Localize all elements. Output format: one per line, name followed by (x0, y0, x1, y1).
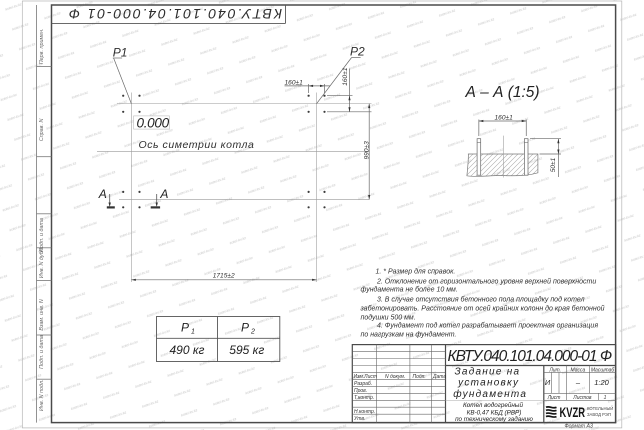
svg-text:Инв. N дубл.: Инв. N дубл. (39, 247, 45, 278)
svg-text:Инв. N подл.: Инв. N подл. (39, 379, 45, 411)
svg-text:Изм.Лист: Изм.Лист (354, 374, 378, 380)
svg-text:160±1: 160±1 (495, 114, 514, 121)
svg-text:по нагрузкам на фундамент.: по нагрузкам на фундамент. (361, 331, 457, 339)
svg-text:160±1: 160±1 (285, 79, 304, 86)
svg-text:подушки 500 мм.: подушки 500 мм. (361, 314, 416, 322)
svg-text:KVZR: KVZR (560, 404, 586, 420)
svg-text:1715±2: 1715±2 (213, 272, 235, 279)
svg-text:И: И (545, 378, 551, 387)
svg-text:Подп. и дата: Подп. и дата (39, 335, 45, 369)
svg-text:Разраб.: Разраб. (354, 381, 372, 387)
svg-text:установку: установку (457, 377, 519, 388)
svg-text:А: А (159, 187, 168, 201)
svg-text:Лист: Лист (547, 395, 561, 401)
svg-text:Листов: Листов (572, 395, 592, 401)
svg-text:Формат А3: Формат А3 (565, 423, 593, 429)
svg-text:Н.контр.: Н.контр. (354, 409, 375, 415)
svg-text:N докум.: N докум. (385, 374, 405, 380)
svg-text:–: – (575, 378, 581, 387)
svg-text:Задание на: Задание на (455, 366, 521, 377)
svg-text:ЗАВОД РЭП: ЗАВОД РЭП (587, 412, 611, 417)
svg-text:А: А (98, 187, 107, 201)
svg-text:по техническому заданию: по техническому заданию (455, 415, 533, 423)
svg-text:А – А (1:5): А – А (1:5) (465, 84, 540, 101)
svg-text:Масштаб: Масштаб (591, 367, 615, 373)
svg-text:Подп.: Подп. (413, 374, 426, 380)
svg-text:Масса: Масса (571, 367, 586, 373)
svg-text:Ось симетрии котла: Ось симетрии котла (139, 139, 255, 151)
svg-text:Перв. примен.: Перв. примен. (39, 28, 45, 64)
svg-text:КВТУ.040.101.04.000-01 Ф: КВТУ.040.101.04.000-01 Ф (67, 6, 282, 22)
svg-text:Пров.: Пров. (354, 388, 367, 394)
svg-text:1:20: 1:20 (594, 378, 609, 387)
svg-text:Т.контр.: Т.контр. (354, 395, 374, 401)
svg-text:595 кг: 595 кг (229, 343, 264, 357)
svg-text:КОТЕЛЬНЫЙ: КОТЕЛЬНЫЙ (587, 406, 613, 411)
svg-text:3. В случае отсутствия бетонно: 3. В случае отсутствия бетонного пола пл… (377, 295, 585, 303)
svg-text:Справ. N: Справ. N (39, 119, 45, 142)
svg-text:Подп. и дата: Подп. и дата (39, 218, 45, 252)
svg-text:490 кг: 490 кг (170, 343, 205, 357)
svg-text:160±1: 160±1 (342, 67, 349, 86)
svg-text:2. Отклонение от горизонтально: 2. Отклонение от горизонтального уровня … (376, 277, 596, 285)
svg-text:50±1: 50±1 (550, 157, 557, 172)
svg-text:Взам. инв. N: Взам. инв. N (39, 299, 45, 331)
svg-text:фундамента: фундамента (453, 388, 527, 400)
svg-text:Лит.: Лит. (548, 367, 561, 373)
svg-text:КВТУ.040.101.04.000-01 Ф: КВТУ.040.101.04.000-01 Ф (448, 348, 612, 365)
svg-text:Утв.: Утв. (354, 416, 365, 422)
svg-text:забетонировать. Расстояние от: забетонировать. Расстояние от осей крайн… (360, 305, 605, 313)
svg-text:1: 1 (604, 395, 607, 401)
svg-text:фундамента не более 10 мм.: фундамента не более 10 мм. (361, 286, 458, 294)
svg-text:990±3: 990±3 (363, 141, 370, 160)
svg-text:P2: P2 (350, 45, 365, 59)
svg-text:P1: P1 (113, 45, 128, 59)
svg-text:4. Фундамент под котел разраба: 4. Фундамент под котел разрабатывает про… (377, 322, 598, 330)
svg-text:Котел водогрейный: Котел водогрейный (463, 401, 523, 409)
svg-text:Дата: Дата (432, 374, 446, 380)
svg-text:1. * Размер для справок.: 1. * Размер для справок. (376, 268, 456, 276)
svg-text:0.000: 0.000 (137, 116, 170, 131)
